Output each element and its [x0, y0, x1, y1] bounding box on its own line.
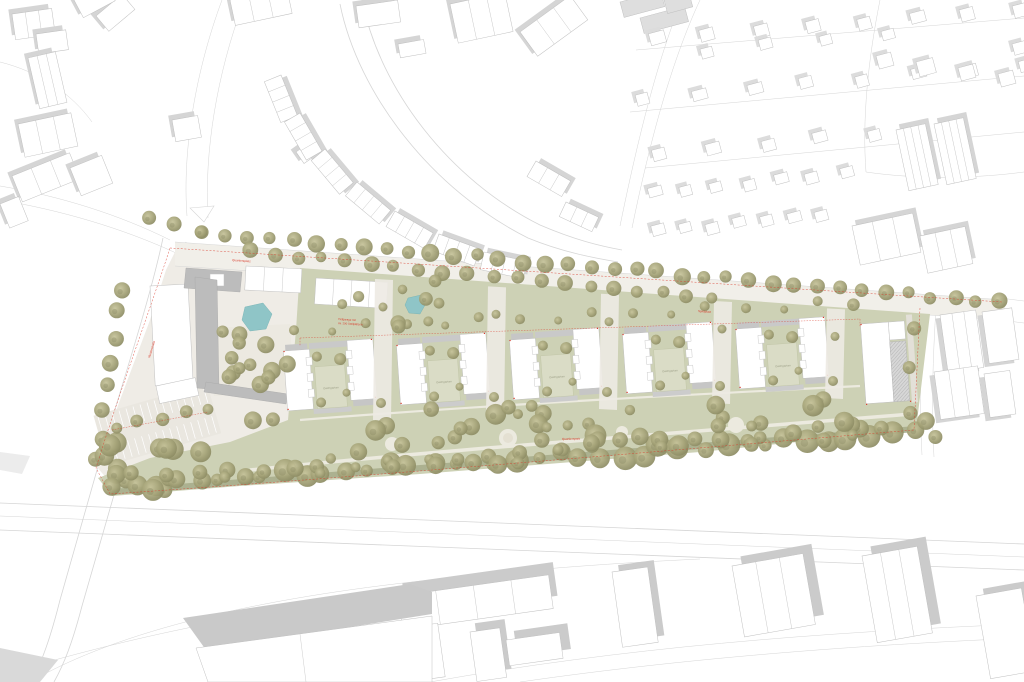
tree-texture [389, 465, 394, 470]
tree-texture [99, 454, 105, 460]
tree-texture [588, 266, 593, 271]
dimension-tick [860, 324, 861, 325]
tree-texture [398, 444, 403, 449]
dimension-tick [823, 317, 824, 318]
tree-symbol [706, 293, 717, 304]
tree-texture [354, 450, 360, 456]
tree-symbol [831, 332, 840, 341]
tree-texture [183, 411, 187, 415]
context-building [979, 370, 1016, 421]
balcony [760, 367, 767, 375]
balcony [798, 328, 805, 336]
building-footprint [934, 366, 984, 420]
tree-texture [235, 342, 239, 346]
tree-symbol [203, 404, 214, 415]
tree-symbol [351, 462, 361, 472]
balcony [348, 382, 355, 390]
tree-texture [537, 439, 542, 444]
tree-texture [170, 223, 175, 228]
tree-texture [536, 457, 540, 461]
house [794, 71, 813, 90]
tree-texture [248, 419, 254, 425]
context-building [65, 151, 112, 197]
dimension-tick [710, 322, 711, 323]
tree-texture [290, 238, 295, 243]
house [675, 181, 693, 198]
tree-texture [905, 291, 909, 295]
tree-texture [431, 464, 437, 470]
tree-texture [561, 282, 566, 287]
context-building [929, 366, 985, 423]
tree-texture [133, 420, 137, 424]
tree-texture [594, 457, 600, 463]
dimension-tick [739, 387, 740, 388]
tree-texture [112, 337, 117, 342]
tree-texture [363, 470, 367, 474]
balcony [459, 344, 466, 352]
tree-texture [585, 423, 589, 427]
site-plan: DachgartenDachgartenDachgartenDachgarten… [0, 0, 1024, 682]
tree-texture [673, 444, 680, 451]
tree-texture [778, 436, 784, 442]
tree-texture [490, 413, 497, 420]
house [757, 134, 777, 153]
tree-texture [132, 484, 138, 490]
tree-symbol [746, 421, 757, 432]
tree-symbol [718, 325, 727, 334]
building-footprint [860, 322, 894, 404]
tree-texture [714, 424, 719, 429]
balcony [308, 389, 315, 397]
context-building [24, 47, 67, 110]
road-island [0, 452, 30, 474]
building-footprint [245, 266, 302, 293]
balcony [686, 349, 693, 357]
balcony [645, 340, 652, 348]
playground-surface [503, 433, 513, 443]
tree-symbol [542, 422, 552, 432]
context-building [386, 207, 438, 250]
tree-texture [474, 253, 478, 257]
tree-texture [839, 420, 845, 426]
tree-texture [162, 474, 167, 479]
context-building [919, 221, 977, 273]
context-building [975, 581, 1024, 679]
tree-texture [97, 409, 102, 414]
house [810, 205, 829, 223]
dimension-tick [509, 340, 510, 341]
tree-texture [484, 455, 489, 460]
house [783, 207, 803, 225]
house [756, 210, 775, 228]
tree-texture [400, 464, 407, 471]
house [701, 217, 720, 236]
tree-texture [196, 471, 201, 476]
tree-texture [491, 276, 495, 280]
tree-symbol [715, 381, 725, 391]
building-footprint [732, 553, 815, 636]
tree-texture [493, 257, 498, 262]
tree-texture [677, 275, 683, 281]
tree-symbol [111, 423, 122, 434]
house [728, 212, 747, 230]
house [695, 23, 715, 43]
tree-texture [431, 280, 435, 284]
context-building [731, 544, 826, 637]
tree-symbol [337, 299, 347, 309]
tree-texture [619, 456, 627, 464]
tree-texture [611, 268, 615, 272]
tree-texture [161, 447, 168, 454]
balcony [534, 378, 541, 386]
dimension-tick [287, 409, 288, 410]
tree-texture [514, 276, 518, 280]
tree-texture [788, 432, 794, 438]
tree-symbol [605, 317, 614, 326]
house [801, 15, 821, 35]
tree-texture [492, 463, 498, 469]
context-building [469, 619, 513, 681]
tree-symbol [376, 398, 386, 408]
tree-texture [415, 269, 419, 273]
tree-symbol [434, 298, 445, 309]
balcony [533, 362, 540, 370]
tree-symbol [489, 392, 499, 402]
tree-symbol [586, 281, 598, 293]
tree-texture [711, 404, 717, 410]
tree-texture [744, 279, 749, 284]
tree-texture [295, 257, 299, 261]
tree-texture [395, 325, 399, 329]
tree-texture [370, 429, 377, 436]
tree-texture [241, 475, 246, 480]
balcony [532, 346, 539, 354]
tree-texture [972, 301, 976, 305]
tree-symbol [379, 303, 388, 312]
tree-texture [789, 284, 794, 289]
tree-texture [228, 357, 232, 361]
context-building [168, 111, 201, 143]
tree-texture [715, 438, 721, 444]
house [994, 66, 1016, 88]
balcony [346, 350, 353, 358]
context-building [977, 308, 1019, 367]
tree-texture [425, 251, 431, 257]
balcony [574, 371, 581, 379]
tree-symbol [326, 453, 336, 463]
dimension-tick [513, 398, 514, 399]
context-building [611, 560, 665, 647]
context-building [352, 0, 400, 28]
tree-texture [518, 262, 523, 267]
house [705, 177, 723, 194]
house [643, 181, 663, 199]
tree-texture [449, 255, 454, 260]
balcony [461, 376, 468, 384]
balcony [800, 360, 807, 368]
house [872, 48, 894, 70]
tree-symbol [315, 468, 326, 479]
tree-texture [367, 263, 372, 268]
tree-texture [633, 268, 638, 273]
house [954, 60, 976, 82]
tree-texture [533, 422, 539, 428]
tree-texture [921, 420, 927, 426]
tree-texture [801, 439, 809, 447]
tree-symbol [492, 310, 501, 319]
tree-texture [540, 263, 545, 268]
dimension-tick [910, 401, 911, 402]
dimension-tick [484, 333, 485, 334]
balcony [687, 365, 694, 373]
house [674, 217, 692, 234]
tree-texture [341, 470, 347, 476]
balcony [421, 383, 428, 391]
balcony [572, 339, 579, 347]
tree-texture [762, 444, 766, 448]
context-building [446, 0, 513, 44]
tree-symbol [828, 376, 838, 386]
house [877, 24, 896, 41]
tree-texture [427, 408, 432, 413]
house [851, 70, 870, 89]
tree-texture [451, 436, 456, 441]
tree-texture [882, 291, 887, 296]
tree-texture [682, 295, 686, 299]
tree-texture [236, 367, 240, 371]
house [1008, 37, 1024, 56]
context-building [226, 0, 292, 26]
house [815, 30, 833, 47]
house [853, 12, 873, 32]
context-building [505, 623, 572, 665]
tree-texture [931, 436, 936, 441]
tree-texture [247, 364, 251, 368]
tree-texture [839, 437, 846, 444]
tree-texture [468, 461, 474, 467]
tree-texture [112, 309, 117, 314]
house [955, 3, 975, 23]
balcony [799, 344, 806, 352]
tree-texture [255, 383, 261, 389]
tree-symbol [563, 420, 573, 430]
house [1014, 54, 1024, 73]
building-footprint [450, 0, 513, 43]
building-footprint [976, 588, 1024, 679]
tree-symbol [423, 316, 433, 326]
dimension-tick [735, 329, 736, 330]
balcony [573, 355, 580, 363]
tree-texture [313, 465, 318, 470]
tree-texture [405, 251, 409, 255]
tree-texture [635, 435, 641, 441]
tree-texture [638, 455, 645, 462]
tree-texture [819, 439, 824, 444]
balcony [685, 333, 692, 341]
tree-texture [103, 384, 108, 389]
tree-texture [195, 450, 202, 457]
tree-texture [691, 438, 696, 443]
tree-texture [219, 331, 223, 335]
tree-texture [279, 468, 286, 475]
tree-texture [564, 263, 569, 268]
balcony [460, 360, 467, 368]
building-footprint [940, 310, 984, 372]
building-footprint [506, 632, 563, 665]
tree-texture [652, 269, 657, 274]
building-footprint [230, 0, 292, 25]
tree-texture [422, 298, 426, 302]
building-shadow [0, 648, 58, 682]
tree-texture [435, 442, 439, 446]
tree-texture [587, 442, 592, 447]
tree-symbol [625, 405, 635, 415]
tree-texture [454, 458, 458, 462]
balcony [420, 367, 427, 375]
house [739, 175, 757, 193]
tree-texture [106, 485, 112, 491]
tree-texture [906, 412, 911, 417]
tree-texture [225, 375, 230, 380]
tree-texture [341, 259, 345, 263]
tree-texture [243, 237, 247, 241]
tree-texture [515, 451, 520, 456]
tree-texture [260, 470, 265, 475]
house [863, 125, 882, 144]
tree-symbol [219, 471, 230, 482]
tree-texture [145, 217, 149, 221]
dimension-tick [396, 345, 397, 346]
dimension-tick [400, 403, 401, 404]
tree-texture [807, 404, 814, 411]
site-plan-canvas: DachgartenDachgartenDachgartenDachgarten… [0, 0, 1024, 682]
tree-texture [197, 231, 201, 235]
context-building [394, 35, 426, 59]
house [808, 126, 828, 145]
tree-texture [283, 363, 288, 368]
tree-texture [462, 272, 467, 277]
tree-texture [118, 289, 123, 294]
tree-texture [906, 366, 910, 370]
house [770, 168, 790, 186]
tree-symbol [353, 291, 364, 302]
tree-symbol [398, 285, 408, 295]
tree-texture [311, 242, 317, 248]
tree-texture [701, 449, 706, 454]
balcony [646, 356, 653, 364]
tree-texture [836, 286, 840, 290]
balcony [419, 351, 426, 359]
context-building [851, 207, 925, 265]
building-footprint [888, 321, 905, 340]
tree-texture [390, 265, 394, 269]
context-building [527, 157, 576, 198]
tree-texture [127, 472, 132, 477]
tree-texture [722, 276, 726, 280]
tree-symbol [526, 400, 538, 412]
balcony [759, 351, 766, 359]
tree-texture [926, 297, 930, 301]
balcony [306, 357, 313, 365]
balcony [647, 372, 654, 380]
tree-texture [261, 343, 266, 348]
tree-texture [269, 418, 274, 423]
balcony [347, 366, 354, 374]
tree-symbol [631, 286, 643, 298]
traffic-island [190, 206, 214, 222]
context-building [14, 108, 78, 158]
tree-texture [700, 276, 704, 280]
tree-texture [104, 444, 111, 451]
tree-texture [910, 327, 915, 332]
tree-texture [813, 285, 818, 290]
gray-roof-bar [195, 277, 219, 390]
house [836, 162, 855, 180]
park-label: Quartierspark [562, 437, 581, 441]
tree-texture [338, 243, 342, 247]
tree-texture [359, 246, 364, 251]
tree-texture [197, 479, 203, 485]
context-building [515, 0, 588, 58]
dimension-tick [371, 339, 372, 340]
building-footprint [150, 284, 193, 386]
tree-texture [264, 376, 269, 381]
tree-texture [815, 426, 819, 430]
house [647, 143, 666, 162]
tree-texture [266, 237, 270, 241]
street-front-building [245, 266, 302, 293]
tree-texture [105, 362, 110, 367]
tree-texture [221, 235, 225, 239]
tree-symbol [316, 252, 327, 263]
tree-texture [850, 304, 854, 308]
tree-texture [610, 287, 615, 292]
existing-hall [150, 284, 193, 386]
tree-texture [290, 467, 295, 472]
house [1008, 0, 1024, 19]
context-building [559, 197, 603, 233]
dimension-tick [626, 392, 627, 393]
path-node [728, 417, 744, 433]
building-footprint [172, 115, 201, 141]
tree-texture [214, 479, 218, 483]
tree-texture [756, 422, 761, 427]
industrial-building [0, 584, 432, 682]
tree-texture [877, 427, 882, 432]
balcony [758, 335, 765, 343]
tree-texture [660, 291, 664, 295]
tree-texture [504, 406, 509, 411]
house [800, 167, 819, 186]
house [687, 84, 708, 102]
tree-texture [383, 247, 387, 251]
dimension-tick [866, 404, 867, 405]
house [701, 137, 722, 157]
tree-symbol [602, 387, 612, 397]
tree-texture [911, 429, 917, 435]
balcony [307, 373, 314, 381]
tree-texture [457, 427, 461, 431]
house [647, 219, 666, 237]
dimension-tick [622, 334, 623, 335]
tree-texture [616, 439, 621, 444]
house [743, 78, 764, 97]
tree-texture [538, 279, 543, 284]
tree-texture [769, 282, 774, 287]
tree-texture [572, 456, 578, 462]
tree-texture [514, 462, 518, 466]
dimension-tick [283, 351, 284, 352]
